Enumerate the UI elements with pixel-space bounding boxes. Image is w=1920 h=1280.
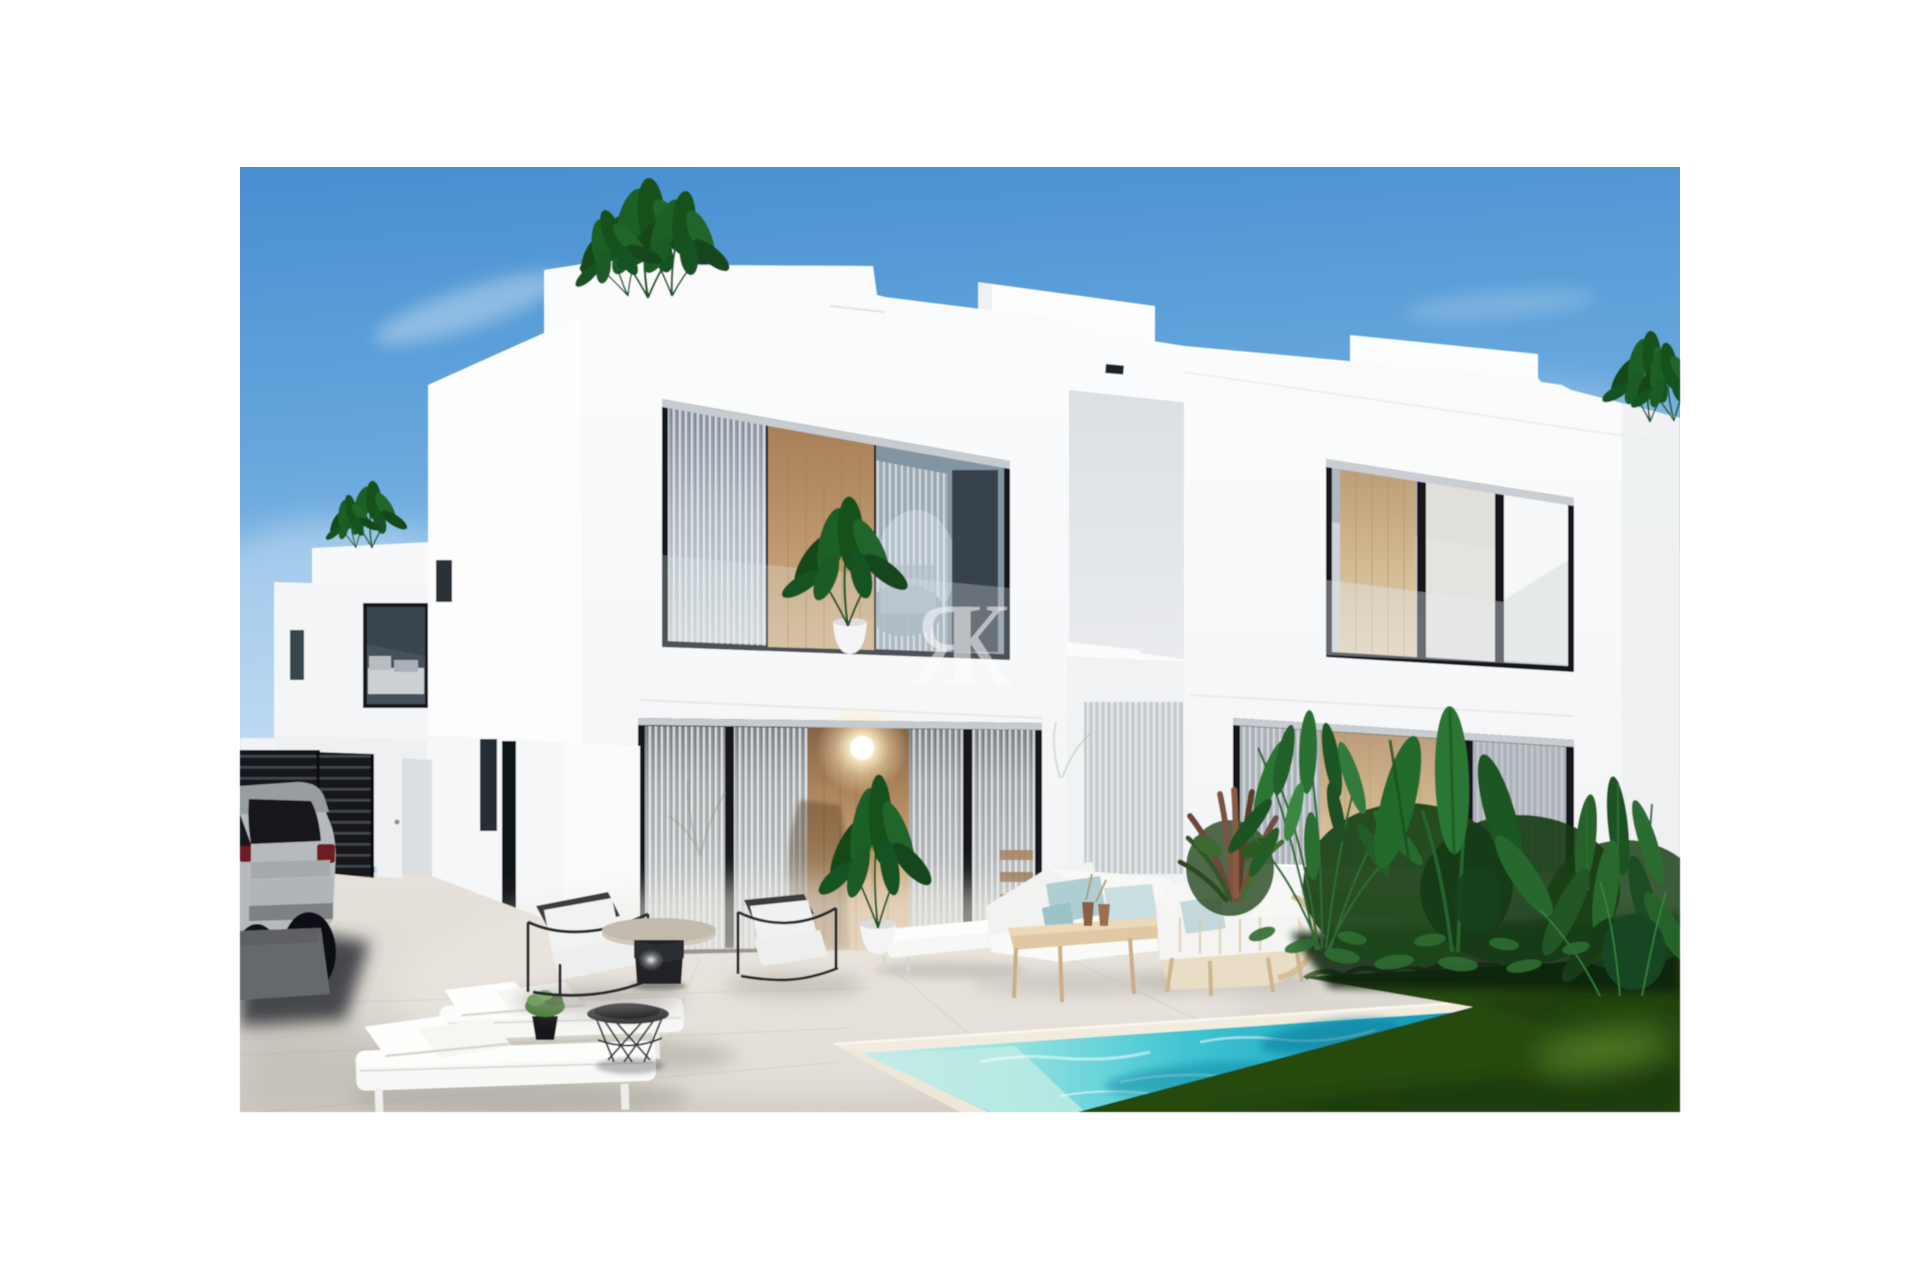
svg-text:K: K [943, 580, 1013, 710]
